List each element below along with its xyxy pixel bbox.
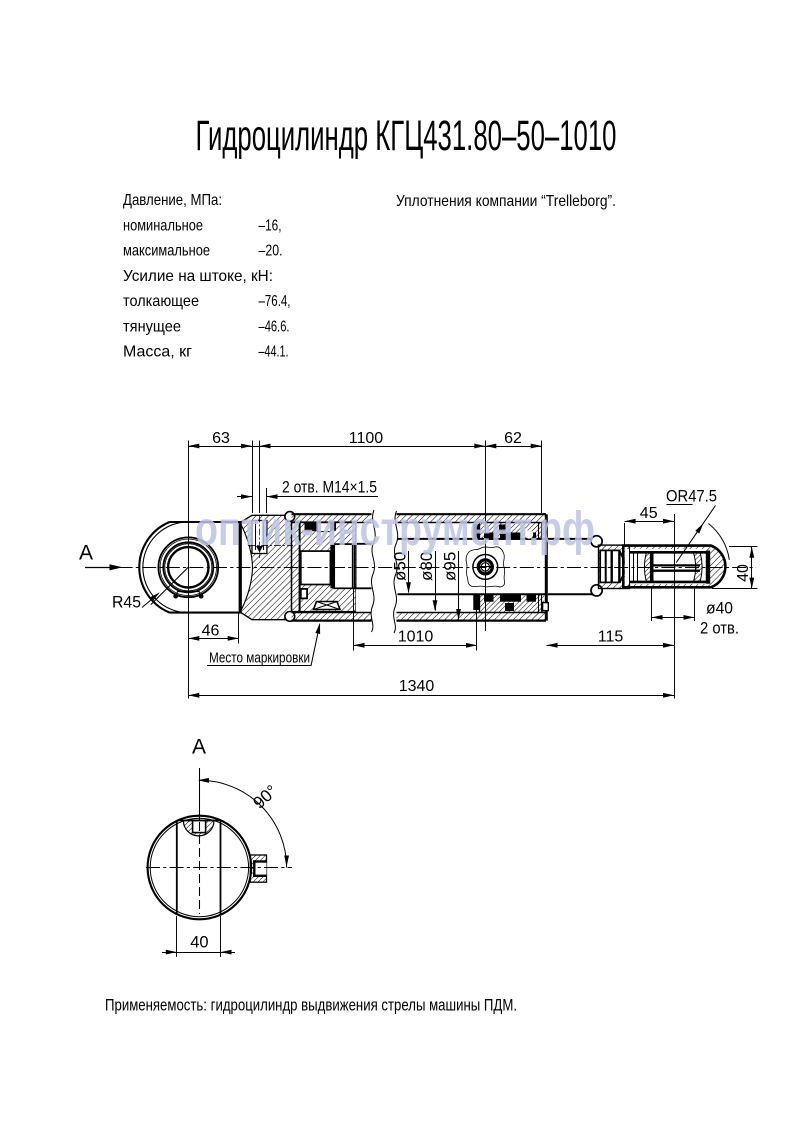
svg-text:2 отв. M14×1.5: 2 отв. M14×1.5 [282,479,377,497]
svg-text:Усилие на штоке, кН:: Усилие на штоке, кН: [123,268,273,285]
svg-text:R45: R45 [112,594,141,612]
svg-text:–44.1.: –44.1. [259,344,289,361]
svg-text:1340: 1340 [399,678,435,695]
svg-text:2 отв.: 2 отв. [700,619,739,637]
svg-text:Давление, МПа:: Давление, МПа: [123,192,222,209]
svg-text:–20.: –20. [259,243,283,260]
svg-text:115: 115 [598,628,624,645]
svg-text:Место маркировки: Место маркировки [209,650,310,666]
svg-text:A: A [79,542,93,565]
svg-text:–76.4,: –76.4, [259,293,291,310]
svg-text:Применяемость: гидроцилиндр вы: Применяемость: гидроцилиндр выдвижения с… [105,997,517,1015]
svg-text:тянущее: тянущее [123,318,181,335]
svg-text:OR47.5: OR47.5 [666,487,717,505]
svg-text:1010: 1010 [398,628,434,645]
svg-text:ø40: ø40 [706,599,733,618]
svg-text:40: 40 [735,564,752,582]
svg-text:Гидроцилиндр КГЦ431.80–50–1010: Гидроцилиндр КГЦ431.80–50–1010 [196,112,617,160]
svg-text:Масса, кг: Масса, кг [123,344,192,361]
svg-text:62: 62 [504,430,522,447]
svg-text:номинальное: номинальное [123,217,203,234]
svg-text:A: A [192,736,206,759]
svg-text:40: 40 [190,934,208,952]
svg-text:ø95: ø95 [441,552,460,581]
svg-text:–16,: –16, [259,217,282,234]
svg-text:1100: 1100 [349,430,384,447]
svg-text:ø50: ø50 [391,552,410,581]
svg-text:46: 46 [202,623,220,640]
svg-text:63: 63 [212,430,230,447]
svg-text:45: 45 [640,505,658,522]
svg-text:–46.6.: –46.6. [259,318,290,335]
svg-text:оптик-инструмент.рф: оптик-инструмент.рф [195,502,595,556]
svg-text:толкающее: толкающее [123,293,199,310]
svg-text:Уплотнения компании “Trellebor: Уплотнения компании “Trelleborg”. [396,193,616,210]
svg-text:максимальное: максимальное [123,243,210,260]
svg-text:ø80: ø80 [417,552,436,581]
